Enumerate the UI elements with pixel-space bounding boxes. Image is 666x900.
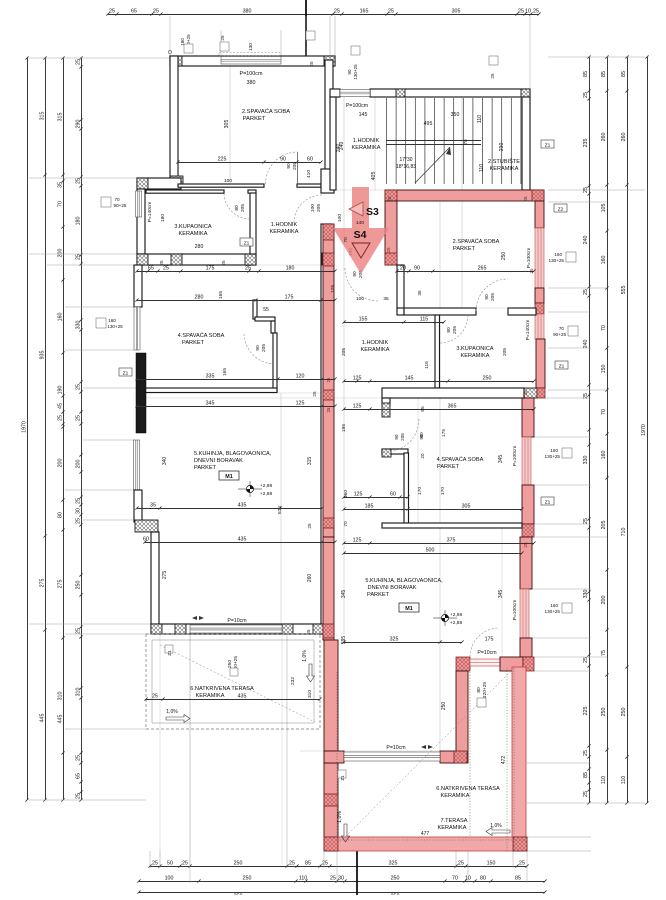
svg-text:Z1: Z1 <box>545 499 551 505</box>
svg-text:KERAMIKA: KERAMIKA <box>461 353 490 359</box>
svg-text:305: 305 <box>452 8 461 14</box>
svg-text:125: 125 <box>354 491 363 497</box>
svg-text:315: 315 <box>307 457 313 466</box>
svg-text:25: 25 <box>109 8 115 14</box>
svg-text:1.HODNIK: 1.HODNIK <box>271 222 298 228</box>
svg-text:275: 275 <box>57 580 63 589</box>
svg-text:25: 25 <box>312 391 317 397</box>
svg-text:170: 170 <box>440 487 446 495</box>
svg-text:65: 65 <box>131 8 137 14</box>
svg-text:25: 25 <box>75 793 81 799</box>
svg-text:60: 60 <box>390 491 396 497</box>
svg-text:205: 205 <box>490 293 496 301</box>
svg-text:20: 20 <box>400 265 406 271</box>
svg-text:200: 200 <box>601 596 607 605</box>
svg-text:120: 120 <box>296 373 305 379</box>
svg-text:305: 305 <box>462 503 471 509</box>
svg-text:Z1: Z1 <box>559 363 565 369</box>
svg-text:260: 260 <box>601 133 607 142</box>
svg-text:290: 290 <box>75 120 81 129</box>
svg-text:330: 330 <box>583 590 589 599</box>
svg-text:85: 85 <box>305 860 311 866</box>
svg-text:25: 25 <box>583 518 589 524</box>
svg-text:160: 160 <box>57 313 63 322</box>
svg-text:25: 25 <box>388 8 394 14</box>
svg-text:Z1: Z1 <box>167 650 172 656</box>
svg-text:90: 90 <box>484 294 490 300</box>
svg-text:180: 180 <box>286 265 295 271</box>
svg-text:55: 55 <box>263 307 269 313</box>
svg-text:125: 125 <box>353 403 362 409</box>
svg-text:18*16,83: 18*16,83 <box>396 164 416 170</box>
svg-text:90: 90 <box>286 163 292 169</box>
svg-text:PARKET: PARKET <box>243 116 266 122</box>
svg-text:25: 25 <box>334 8 340 14</box>
svg-text:2.STUBIŠTE: 2.STUBIŠTE <box>488 158 520 165</box>
svg-text:345: 345 <box>498 590 504 599</box>
svg-text:25: 25 <box>490 73 495 79</box>
svg-text:160: 160 <box>601 451 607 460</box>
svg-text:250: 250 <box>621 708 627 717</box>
svg-text:205: 205 <box>316 204 322 212</box>
svg-text:5.KUHINJA, BLAGOVAONICA,: 5.KUHINJA, BLAGOVAONICA, <box>194 451 272 457</box>
svg-text:100: 100 <box>224 178 232 184</box>
svg-text:110: 110 <box>477 115 483 123</box>
svg-text:310: 310 <box>75 688 81 697</box>
svg-text:330: 330 <box>75 321 81 330</box>
svg-text:70: 70 <box>343 521 349 527</box>
svg-text:240: 240 <box>336 144 342 153</box>
svg-text:335: 335 <box>206 373 215 379</box>
svg-text:M1: M1 <box>405 606 413 612</box>
svg-text:10: 10 <box>525 8 531 14</box>
svg-text:280: 280 <box>195 294 204 300</box>
svg-text:150: 150 <box>601 365 607 374</box>
svg-text:KERAMIKA: KERAMIKA <box>196 693 225 699</box>
svg-text:25: 25 <box>75 178 81 184</box>
svg-text:145: 145 <box>359 112 368 118</box>
svg-text:50: 50 <box>167 860 173 866</box>
svg-text:60: 60 <box>307 156 313 162</box>
svg-text:250: 250 <box>601 708 607 717</box>
svg-text:165: 165 <box>222 368 228 376</box>
svg-text:100: 100 <box>356 296 364 302</box>
svg-text:+2,98: +2,98 <box>260 483 272 489</box>
svg-text:130+25: 130+25 <box>549 258 565 263</box>
svg-text:375: 375 <box>447 537 456 543</box>
svg-text:500: 500 <box>426 547 435 553</box>
svg-text:1.HODNIK: 1.HODNIK <box>353 138 380 144</box>
svg-text:25: 25 <box>75 755 81 761</box>
svg-text:310: 310 <box>57 692 63 701</box>
svg-text:240: 240 <box>583 236 589 245</box>
svg-text:PARKET: PARKET <box>437 464 460 470</box>
svg-text:110: 110 <box>621 776 627 784</box>
svg-text:P=140cm: P=140cm <box>525 320 531 340</box>
svg-text:100: 100 <box>310 204 316 212</box>
svg-text:90+25: 90+25 <box>553 332 566 337</box>
svg-text:70: 70 <box>463 139 468 145</box>
svg-text:90: 90 <box>280 156 286 162</box>
svg-text:205: 205 <box>240 204 246 212</box>
svg-text:555: 555 <box>621 286 627 295</box>
svg-text:25: 25 <box>518 8 524 14</box>
svg-text:80: 80 <box>446 327 452 333</box>
svg-text:160: 160 <box>601 256 607 265</box>
svg-text:90+25: 90+25 <box>114 203 127 208</box>
svg-text:200: 200 <box>75 460 81 469</box>
svg-text:25: 25 <box>330 875 336 881</box>
svg-text:25: 25 <box>583 750 589 756</box>
svg-text:175: 175 <box>441 429 447 437</box>
svg-text:S3: S3 <box>366 206 379 218</box>
svg-text:345: 345 <box>498 455 504 464</box>
svg-text:250: 250 <box>234 860 243 866</box>
svg-text:+2,98: +2,98 <box>450 612 462 618</box>
svg-text:KERAMIKA: KERAMIKA <box>352 145 381 151</box>
svg-text:250: 250 <box>227 660 233 668</box>
svg-text:25: 25 <box>163 265 169 271</box>
svg-text:+2,88: +2,88 <box>450 620 462 626</box>
svg-text:160: 160 <box>108 318 116 323</box>
svg-text:175: 175 <box>485 636 494 642</box>
svg-text:35: 35 <box>57 182 63 188</box>
svg-text:340: 340 <box>162 457 168 466</box>
svg-text:+2,88: +2,88 <box>260 491 272 497</box>
svg-text:220+25: 220+25 <box>482 682 488 698</box>
svg-text:25: 25 <box>75 628 81 634</box>
svg-text:25: 25 <box>386 247 391 253</box>
svg-text:80: 80 <box>57 512 63 518</box>
svg-text:472: 472 <box>501 756 507 765</box>
svg-text:205: 205 <box>452 326 458 334</box>
svg-text:25: 25 <box>153 8 159 14</box>
svg-text:110: 110 <box>299 875 307 881</box>
svg-text:85: 85 <box>515 875 521 881</box>
svg-text:2.SPAVAĆA SOBA: 2.SPAVAĆA SOBA <box>242 108 290 115</box>
svg-text:380: 380 <box>243 8 252 14</box>
svg-text:25: 25 <box>309 61 314 67</box>
svg-text:7.TERASA: 7.TERASA <box>440 818 467 824</box>
svg-text:365: 365 <box>448 403 457 409</box>
svg-text:1,0%: 1,0% <box>337 811 343 823</box>
svg-text:325: 325 <box>389 860 398 866</box>
svg-text:260: 260 <box>307 574 313 583</box>
svg-text:PARKET: PARKET <box>367 592 390 598</box>
svg-text:205: 205 <box>261 344 267 352</box>
svg-text:25: 25 <box>307 523 312 529</box>
svg-text:614: 614 <box>277 506 283 514</box>
svg-text:250: 250 <box>391 875 400 881</box>
svg-text:70: 70 <box>601 325 607 331</box>
svg-text:35: 35 <box>383 296 389 302</box>
svg-text:90: 90 <box>414 265 420 271</box>
svg-text:25: 25 <box>523 390 528 396</box>
svg-text:435: 435 <box>238 502 247 508</box>
svg-text:25: 25 <box>75 59 81 65</box>
svg-text:1,0%: 1,0% <box>302 650 308 662</box>
svg-text:25: 25 <box>326 407 331 412</box>
svg-text:75: 75 <box>601 650 607 656</box>
svg-text:280: 280 <box>195 244 204 250</box>
svg-text:115: 115 <box>420 316 428 322</box>
svg-text:25: 25 <box>182 860 188 866</box>
svg-text:410: 410 <box>306 170 312 178</box>
svg-text:5.KUHINJA, BLAGOVAONICA,: 5.KUHINJA, BLAGOVAONICA, <box>365 578 443 584</box>
svg-text:205: 205 <box>341 348 347 356</box>
svg-text:KERAMIKA: KERAMIKA <box>441 793 470 799</box>
svg-text:130+25: 130+25 <box>107 324 123 329</box>
svg-text:25: 25 <box>57 415 63 421</box>
svg-text:85: 85 <box>601 71 607 77</box>
svg-text:PARKET: PARKET <box>453 246 476 252</box>
svg-text:Z1: Z1 <box>545 142 551 148</box>
svg-text:20: 20 <box>420 453 425 459</box>
svg-text:80: 80 <box>234 205 240 211</box>
svg-text:KERAMIKA: KERAMIKA <box>438 825 467 831</box>
svg-text:PARKET: PARKET <box>194 465 217 471</box>
svg-text:205: 205 <box>502 348 508 356</box>
svg-text:P=140cm: P=140cm <box>147 202 153 222</box>
svg-text:160: 160 <box>343 490 349 498</box>
svg-text:160: 160 <box>550 603 558 608</box>
svg-text:445: 445 <box>57 715 63 724</box>
svg-text:145: 145 <box>405 375 414 381</box>
svg-text:250: 250 <box>501 252 507 261</box>
svg-text:35: 35 <box>417 290 422 296</box>
svg-text:205: 205 <box>601 521 607 530</box>
svg-text:1,0%: 1,0% <box>166 709 178 715</box>
svg-text:140: 140 <box>356 220 364 226</box>
svg-text:25: 25 <box>529 268 534 274</box>
svg-text:P=100cm: P=100cm <box>526 248 532 268</box>
svg-text:170: 170 <box>417 487 423 495</box>
svg-text:Z1: Z1 <box>244 240 250 246</box>
svg-text:100: 100 <box>165 875 174 881</box>
svg-text:155: 155 <box>359 316 368 322</box>
svg-text:70: 70 <box>452 875 458 881</box>
svg-text:90: 90 <box>255 345 261 351</box>
svg-text:150: 150 <box>487 860 496 866</box>
svg-text:1970: 1970 <box>21 421 27 433</box>
svg-text:P=10cm: P=10cm <box>477 650 496 656</box>
svg-text:125: 125 <box>353 375 362 381</box>
svg-text:435: 435 <box>238 536 247 542</box>
svg-text:25: 25 <box>75 384 81 390</box>
svg-text:275: 275 <box>162 571 168 580</box>
svg-text:165: 165 <box>218 291 224 299</box>
svg-text:125: 125 <box>296 400 305 406</box>
svg-text:165: 165 <box>360 8 369 14</box>
svg-text:232: 232 <box>290 677 296 685</box>
svg-text:25: 25 <box>523 196 528 202</box>
svg-text:25: 25 <box>220 35 225 41</box>
svg-text:275: 275 <box>39 579 45 588</box>
svg-text:S4: S4 <box>354 229 367 241</box>
svg-text:DNEVNI BORAVAK: DNEVNI BORAVAK <box>368 585 417 591</box>
svg-text:Z1: Z1 <box>340 775 345 781</box>
svg-text:30: 30 <box>75 508 81 514</box>
svg-text:25: 25 <box>152 693 158 699</box>
svg-text:70: 70 <box>559 326 565 331</box>
svg-text:P=10cm: P=10cm <box>386 745 405 751</box>
svg-text:25: 25 <box>75 254 81 260</box>
svg-text:KERAMIKA: KERAMIKA <box>179 231 208 237</box>
svg-text:P=10cm: P=10cm <box>227 618 246 624</box>
svg-text:M1: M1 <box>225 474 233 480</box>
svg-text:225: 225 <box>583 707 589 716</box>
svg-text:25: 25 <box>583 657 589 663</box>
svg-text:345: 345 <box>341 590 347 599</box>
svg-text:180: 180 <box>75 217 81 226</box>
svg-text:25: 25 <box>387 196 392 202</box>
svg-text:80: 80 <box>476 687 482 693</box>
svg-text:130+25: 130+25 <box>545 609 561 614</box>
svg-text:90: 90 <box>352 271 358 277</box>
svg-text:710: 710 <box>621 528 627 537</box>
svg-text:110: 110 <box>601 776 607 784</box>
svg-text:KERAMIKA: KERAMIKA <box>270 229 299 235</box>
svg-text:200: 200 <box>57 249 63 258</box>
svg-text:380: 380 <box>247 80 256 86</box>
svg-text:70: 70 <box>114 197 120 202</box>
svg-text:240: 240 <box>583 340 589 349</box>
svg-text:115: 115 <box>424 361 430 369</box>
svg-text:80: 80 <box>480 875 486 881</box>
svg-text:90: 90 <box>347 69 352 75</box>
svg-text:KERAMIKA: KERAMIKA <box>361 347 390 353</box>
svg-text:125: 125 <box>330 285 336 293</box>
svg-text:KERAMIKA: KERAMIKA <box>490 166 519 172</box>
svg-text:477: 477 <box>421 831 430 837</box>
svg-text:405: 405 <box>371 172 377 181</box>
svg-text:DNEVNI BORAVAK: DNEVNI BORAVAK <box>194 458 243 464</box>
svg-text:175: 175 <box>206 265 215 271</box>
svg-text:325: 325 <box>390 636 399 642</box>
svg-text:25: 25 <box>75 518 81 524</box>
svg-text:315: 315 <box>57 113 63 122</box>
svg-text:260: 260 <box>621 133 627 142</box>
svg-text:265: 265 <box>478 265 487 271</box>
svg-text:25: 25 <box>583 791 589 797</box>
svg-text:1.HODNIK: 1.HODNIK <box>362 340 389 346</box>
svg-text:180: 180 <box>160 214 166 222</box>
svg-text:250: 250 <box>483 375 492 381</box>
svg-text:200: 200 <box>57 459 63 468</box>
svg-text:25: 25 <box>306 629 311 634</box>
svg-text:330: 330 <box>583 456 589 465</box>
svg-text:110: 110 <box>479 164 485 172</box>
svg-text:25: 25 <box>75 415 81 421</box>
svg-text:6.NATKRIVENA TERASA: 6.NATKRIVENA TERASA <box>190 686 254 692</box>
svg-text:100: 100 <box>337 214 343 222</box>
svg-text:85: 85 <box>583 772 589 778</box>
svg-text:435: 435 <box>238 693 247 699</box>
svg-text:25: 25 <box>533 8 539 14</box>
svg-text:445: 445 <box>39 714 45 723</box>
svg-text:230: 230 <box>499 143 505 152</box>
svg-text:130+25: 130+25 <box>353 64 358 80</box>
svg-text:225: 225 <box>218 156 227 162</box>
svg-text:315: 315 <box>39 112 45 121</box>
svg-text:595: 595 <box>341 636 347 645</box>
svg-text:85: 85 <box>583 71 589 77</box>
svg-text:350: 350 <box>451 112 460 118</box>
svg-text:25: 25 <box>583 92 589 98</box>
svg-text:130: 130 <box>248 43 253 51</box>
svg-text:Z1: Z1 <box>123 370 129 376</box>
svg-text:105: 105 <box>601 204 607 213</box>
svg-text:85: 85 <box>621 71 627 77</box>
svg-text:160: 160 <box>550 448 558 453</box>
svg-text:2.SPAVAĆA SOBA: 2.SPAVAĆA SOBA <box>453 238 500 245</box>
svg-text:25: 25 <box>322 860 328 866</box>
svg-text:205: 205 <box>400 433 405 441</box>
svg-text:345: 345 <box>206 400 215 406</box>
svg-text:25: 25 <box>289 860 295 866</box>
svg-text:190: 190 <box>57 386 63 395</box>
svg-text:250: 250 <box>75 581 81 590</box>
svg-text:25: 25 <box>458 860 464 866</box>
svg-text:185: 185 <box>365 503 374 509</box>
svg-text:P=100cm: P=100cm <box>512 600 518 620</box>
svg-text:P=100cm: P=100cm <box>346 103 368 109</box>
svg-text:35: 35 <box>150 502 156 508</box>
svg-text:3.KUPAONICA: 3.KUPAONICA <box>174 224 211 230</box>
svg-text:935: 935 <box>39 351 45 360</box>
svg-text:310: 310 <box>307 690 313 698</box>
svg-text:60: 60 <box>143 536 149 542</box>
svg-text:25: 25 <box>583 289 589 295</box>
svg-text:25: 25 <box>221 260 226 266</box>
svg-text:45: 45 <box>57 403 63 409</box>
svg-text:P=100cm: P=100cm <box>512 446 518 466</box>
svg-text:25: 25 <box>519 860 525 866</box>
svg-text:160: 160 <box>554 252 562 257</box>
svg-text:90: 90 <box>394 434 399 440</box>
svg-text:PARKET: PARKET <box>182 340 205 346</box>
svg-text:P=100cm: P=100cm <box>240 71 263 77</box>
svg-text:495: 495 <box>424 121 433 127</box>
svg-text:65: 65 <box>420 406 426 412</box>
svg-text:3.KUPAONICA: 3.KUPAONICA <box>456 346 493 352</box>
svg-text:305: 305 <box>224 120 230 129</box>
svg-text:130+25: 130+25 <box>545 454 561 459</box>
svg-text:175: 175 <box>285 294 294 300</box>
svg-text:70: 70 <box>343 237 349 243</box>
svg-text:1970: 1970 <box>641 424 647 436</box>
svg-text:25: 25 <box>75 498 81 504</box>
svg-text:17*30: 17*30 <box>399 157 412 163</box>
svg-text:250: 250 <box>243 875 252 881</box>
svg-text:205: 205 <box>292 162 298 170</box>
svg-text:90: 90 <box>419 434 424 440</box>
svg-text:125: 125 <box>353 537 362 543</box>
svg-text:Z2: Z2 <box>558 206 564 212</box>
svg-text:4.SPAVAĆA SOBA: 4.SPAVAĆA SOBA <box>178 332 225 339</box>
svg-text:235: 235 <box>583 139 589 148</box>
svg-text:65: 65 <box>75 773 81 779</box>
svg-text:25: 25 <box>152 860 158 866</box>
svg-text:30: 30 <box>338 875 344 881</box>
svg-text:4.SPAVAĆA SOBA: 4.SPAVAĆA SOBA <box>437 456 484 463</box>
svg-text:25: 25 <box>245 265 251 271</box>
svg-text:25: 25 <box>523 542 528 548</box>
svg-text:70: 70 <box>601 409 607 415</box>
svg-text:6.NATKRIVENA TERASA: 6.NATKRIVENA TERASA <box>436 786 500 792</box>
svg-text:195: 195 <box>341 424 347 432</box>
svg-text:65: 65 <box>148 265 154 271</box>
